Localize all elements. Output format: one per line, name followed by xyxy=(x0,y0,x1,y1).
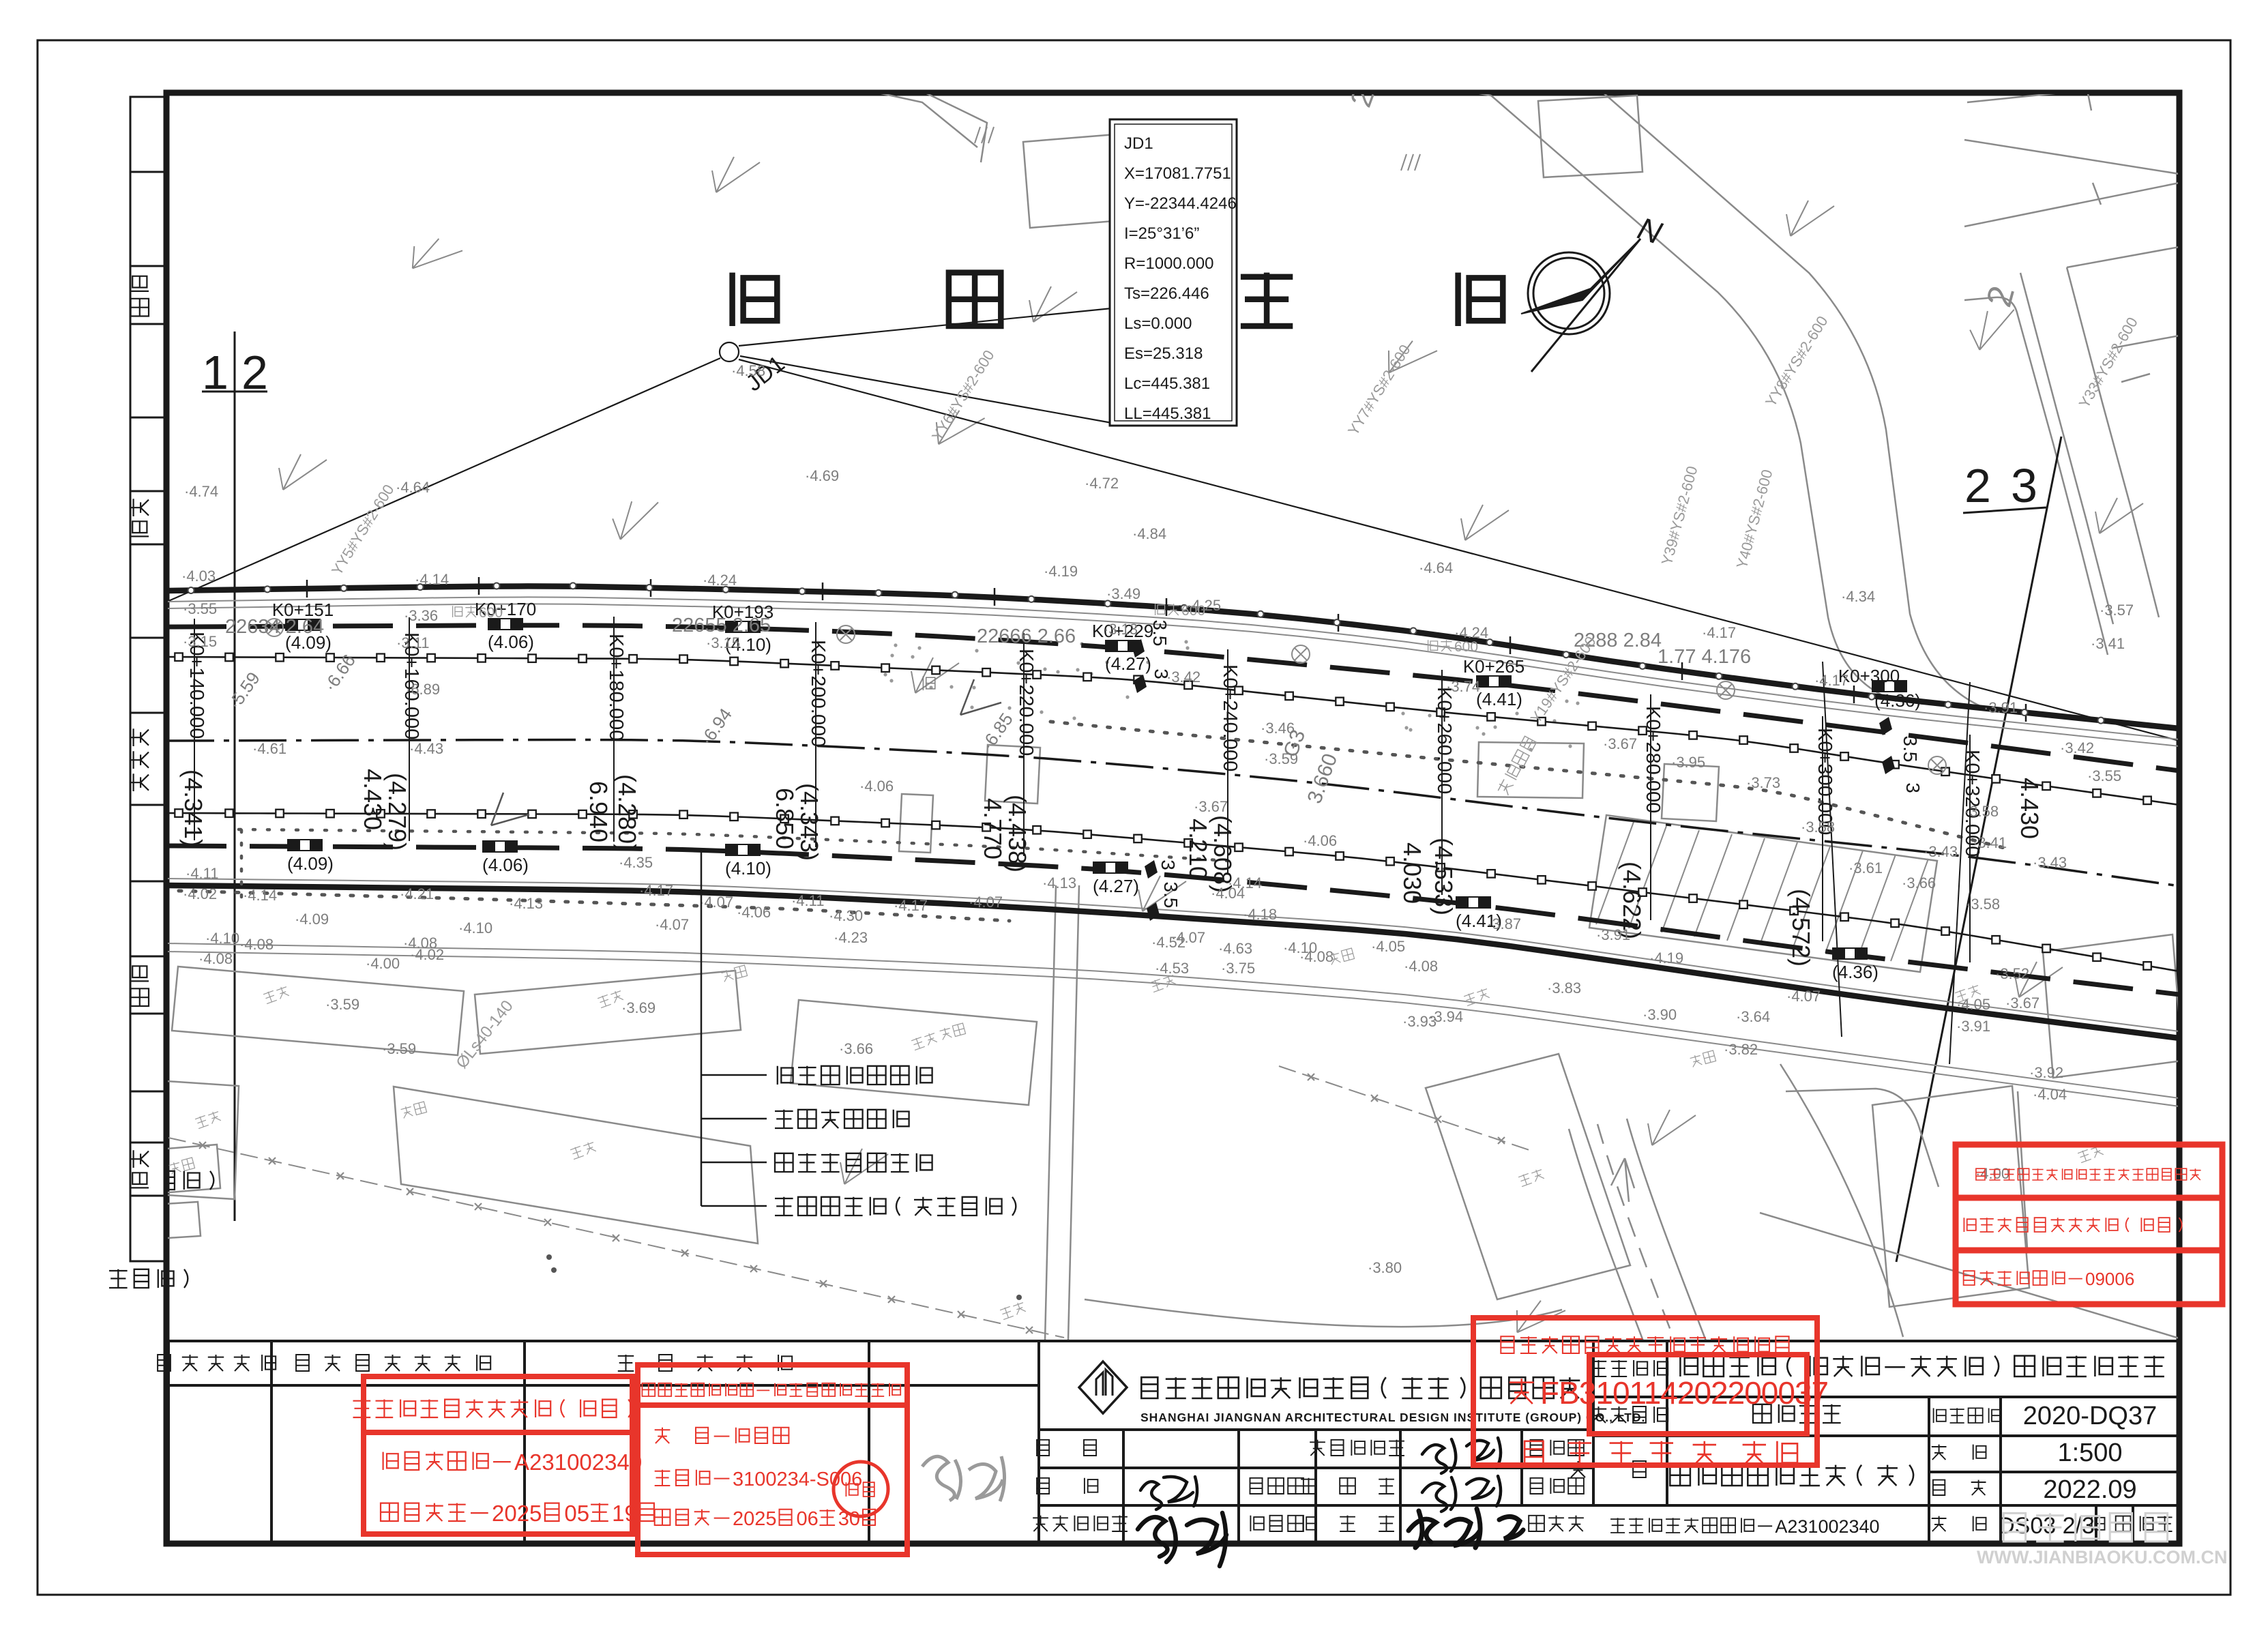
svg-text:·3.43: ·3.43 xyxy=(1924,843,1958,860)
svg-text:·4.24: ·4.24 xyxy=(703,572,737,589)
svg-text:·4.07: ·4.07 xyxy=(969,894,1003,911)
svg-text:·4.07: ·4.07 xyxy=(1786,988,1821,1005)
svg-text:·3.92: ·3.92 xyxy=(2029,1064,2063,1081)
svg-text:3: 3 xyxy=(1902,782,1924,793)
svg-text:(4.06): (4.06) xyxy=(488,632,534,652)
svg-text:·4.06: ·4.06 xyxy=(859,778,894,795)
svg-text:A231002340: A231002340 xyxy=(1775,1516,1879,1537)
svg-text:·3.42: ·3.42 xyxy=(1166,668,1201,686)
svg-text:·3.73: ·3.73 xyxy=(1746,774,1780,791)
svg-text:·4.72: ·4.72 xyxy=(1085,475,1119,492)
svg-text:K0+260.000: K0+260.000 xyxy=(1433,687,1455,794)
svg-text:·4.69: ·4.69 xyxy=(805,467,839,484)
svg-text:·4.43: ·4.43 xyxy=(409,740,443,757)
svg-text:05: 05 xyxy=(564,1501,589,1526)
svg-text:19: 19 xyxy=(612,1501,637,1526)
svg-text:·3.36: ·3.36 xyxy=(404,607,438,624)
svg-text:JD1: JD1 xyxy=(1124,134,1153,153)
svg-text:·3.91: ·3.91 xyxy=(1956,1018,1990,1035)
svg-text:·4.17: ·4.17 xyxy=(1702,624,1736,641)
svg-text:·4.06: ·4.06 xyxy=(1303,832,1337,849)
svg-text:·3.15: ·3.15 xyxy=(183,633,217,650)
svg-text:·4.61: ·4.61 xyxy=(252,740,286,757)
svg-text:09006: 09006 xyxy=(2085,1269,2134,1289)
svg-text:·3.75: ·3.75 xyxy=(1221,960,1255,977)
svg-text:·3.93: ·3.93 xyxy=(1402,1013,1437,1030)
svg-text:4.210: 4.210 xyxy=(1184,819,1212,880)
svg-text:I=25°31’6”: I=25°31’6” xyxy=(1124,224,1199,243)
svg-text:·3.64: ·3.64 xyxy=(1736,1008,1770,1025)
svg-text:Ts=226.446: Ts=226.446 xyxy=(1124,284,1209,303)
svg-text:·3.59: ·3.59 xyxy=(382,1040,416,1057)
svg-text:3: 3 xyxy=(2011,459,2037,512)
svg-text:·3.57: ·3.57 xyxy=(2100,602,2134,619)
svg-text:2022.09: 2022.09 xyxy=(2043,1475,2136,1504)
svg-text:3.5: 3.5 xyxy=(1149,620,1170,647)
svg-text:(4.533): (4.533) xyxy=(1430,838,1458,915)
svg-text:·3.41: ·3.41 xyxy=(2091,635,2125,652)
svg-text:·3.42: ·3.42 xyxy=(2060,739,2094,756)
svg-text:·3.95: ·3.95 xyxy=(1671,754,1705,771)
svg-text:·3.58: ·3.58 xyxy=(1964,803,1999,820)
svg-text:·4.08: ·4.08 xyxy=(1404,958,1438,975)
svg-text:·4.10: ·4.10 xyxy=(205,930,239,947)
svg-text:Ls=0.000: Ls=0.000 xyxy=(1124,314,1192,333)
svg-text:·3.80: ·3.80 xyxy=(1368,1259,1402,1276)
svg-text:K0+180.000: K0+180.000 xyxy=(605,634,627,741)
svg-text:·3.67: ·3.67 xyxy=(2005,995,2039,1012)
svg-text:A231002340: A231002340 xyxy=(514,1449,642,1475)
svg-text:·4.18: ·4.18 xyxy=(1243,906,1277,923)
svg-text:3.5: 3.5 xyxy=(1900,736,1921,763)
svg-text:4.430: 4.430 xyxy=(359,769,387,830)
svg-text:·4.02: ·4.02 xyxy=(183,885,217,902)
svg-text:K0+265: K0+265 xyxy=(1463,656,1525,677)
svg-text:06: 06 xyxy=(797,1508,819,1530)
svg-text:R=1000.000: R=1000.000 xyxy=(1124,254,1213,273)
svg-text:2025: 2025 xyxy=(733,1508,777,1530)
svg-text:K0+240.000: K0+240.000 xyxy=(1219,664,1241,771)
svg-text:·4.04: ·4.04 xyxy=(2033,1086,2067,1103)
svg-text:·3.82: ·3.82 xyxy=(1724,1041,1758,1058)
svg-text:600: 600 xyxy=(479,605,503,621)
svg-text:·4.34: ·4.34 xyxy=(1841,588,1875,605)
svg-text:·4.58: ·4.58 xyxy=(731,362,765,379)
svg-text:600: 600 xyxy=(1454,639,1478,655)
svg-text:(4.27): (4.27) xyxy=(1093,876,1139,896)
svg-text:·4.53: ·4.53 xyxy=(1155,960,1189,977)
svg-text:·3.58: ·3.58 xyxy=(1801,819,1835,836)
svg-text:·4.23: ·4.23 xyxy=(834,929,868,946)
svg-text:22666 2.66: 22666 2.66 xyxy=(977,625,1076,647)
svg-text:3100234-S006: 3100234-S006 xyxy=(733,1469,862,1490)
svg-text:(4.36): (4.36) xyxy=(1874,690,1921,711)
svg-text:·3.67: ·3.67 xyxy=(1603,735,1637,752)
svg-text:WWW.JIANBIAOKU.COM.CN: WWW.JIANBIAOKU.COM.CN xyxy=(1977,1547,2227,1567)
svg-text:2: 2 xyxy=(241,346,268,399)
svg-text:6.940: 6.940 xyxy=(585,781,613,842)
svg-text:(4.36): (4.36) xyxy=(1832,962,1879,982)
svg-text:·3.13: ·3.13 xyxy=(1104,621,1138,638)
svg-text:Es=25.318: Es=25.318 xyxy=(1124,344,1203,363)
svg-text:·4.08: ·4.08 xyxy=(239,936,274,953)
svg-text:(4.438): (4.438) xyxy=(1003,795,1031,872)
svg-text:(4.279): (4.279) xyxy=(383,773,411,851)
svg-text:2020-DQ37: 2020-DQ37 xyxy=(2023,1402,2157,1430)
svg-text:·3.59: ·3.59 xyxy=(325,996,359,1013)
svg-text:(4.09): (4.09) xyxy=(287,853,334,874)
svg-text:(4.10): (4.10) xyxy=(725,858,771,879)
svg-text:·3.66: ·3.66 xyxy=(1902,874,1936,892)
svg-text:·3.67: ·3.67 xyxy=(1194,798,1228,815)
svg-text:1: 1 xyxy=(202,346,229,399)
svg-text:FB310114202200037: FB310114202200037 xyxy=(1540,1375,1828,1411)
svg-text:·4.05: ·4.05 xyxy=(1371,938,1405,955)
svg-text:·4.14: ·4.14 xyxy=(1228,874,1262,892)
svg-text:·3.49: ·3.49 xyxy=(1106,585,1140,602)
svg-text:·4.10: ·4.10 xyxy=(458,919,492,937)
svg-text:4.430: 4.430 xyxy=(2016,778,2044,839)
svg-text:·4.07: ·4.07 xyxy=(655,916,689,933)
svg-text:·3.66: ·3.66 xyxy=(839,1040,873,1057)
svg-text:·4.17: ·4.17 xyxy=(1814,672,1849,689)
svg-text:Y=-22344.4246: Y=-22344.4246 xyxy=(1124,194,1237,213)
svg-text:·4.19: ·4.19 xyxy=(1649,949,1683,967)
svg-text:·3.74: ·3.74 xyxy=(1446,678,1480,695)
svg-text:·4.64: ·4.64 xyxy=(1419,559,1453,576)
svg-text:4.030: 4.030 xyxy=(1398,842,1426,904)
svg-text:(4.41): (4.41) xyxy=(1476,689,1522,709)
svg-text:·4.63: ·4.63 xyxy=(1218,940,1252,957)
svg-text:·4.08: ·4.08 xyxy=(1299,948,1334,965)
svg-text:·4.00: ·4.00 xyxy=(366,955,400,972)
svg-text:·3.52: ·3.52 xyxy=(1995,965,2029,982)
svg-text:K0+200.000: K0+200.000 xyxy=(807,640,829,747)
svg-text:·4.02: ·4.02 xyxy=(410,946,444,963)
svg-text:K0+220.000: K0+220.000 xyxy=(1015,649,1037,756)
svg-text:Lc=445.381: Lc=445.381 xyxy=(1124,374,1210,393)
svg-text:·4.35: ·4.35 xyxy=(619,854,653,871)
svg-text:·3.87: ·3.87 xyxy=(1487,915,1521,932)
svg-text:·3.91: ·3.91 xyxy=(1984,699,2018,716)
svg-text:X=17081.7751: X=17081.7751 xyxy=(1124,164,1231,183)
svg-text:·3.15: ·3.15 xyxy=(706,634,740,651)
svg-text:·4.11: ·4.11 xyxy=(791,892,825,909)
svg-text:SHANGHAI JIANGNAN ARCHITECTURA: SHANGHAI JIANGNAN ARCHITECTURAL DESIGN I… xyxy=(1140,1411,1645,1424)
svg-text:600: 600 xyxy=(1181,603,1205,619)
svg-text:3.5: 3.5 xyxy=(1160,882,1181,909)
svg-text:·4.13: ·4.13 xyxy=(509,895,543,912)
svg-text:·3.90: ·3.90 xyxy=(1643,1006,1677,1023)
svg-text:·3.43: ·3.43 xyxy=(2033,854,2067,871)
svg-text:·3.69: ·3.69 xyxy=(621,999,656,1016)
svg-text:·3.61: ·3.61 xyxy=(1849,859,1883,877)
svg-text:1.77 4.176: 1.77 4.176 xyxy=(1658,646,1751,668)
svg-text:·4.08: ·4.08 xyxy=(198,950,233,967)
svg-text:·4.06: ·4.06 xyxy=(737,904,771,921)
svg-text:·4.05: ·4.05 xyxy=(1956,996,1990,1013)
svg-text:1:500: 1:500 xyxy=(2057,1439,2122,1467)
svg-text:·3.83: ·3.83 xyxy=(1547,979,1581,997)
svg-text:22634 2.64: 22634 2.64 xyxy=(225,616,324,638)
svg-text:·3.91: ·3.91 xyxy=(1596,926,1630,943)
svg-text:·4.07: ·4.07 xyxy=(699,894,733,911)
svg-text:(4.572): (4.572) xyxy=(1787,889,1815,967)
svg-text:(4.280): (4.280) xyxy=(613,774,641,852)
svg-text:·4.19: ·4.19 xyxy=(1044,563,1078,580)
svg-text:LL=445.381: LL=445.381 xyxy=(1124,404,1211,423)
svg-text:·3.55: ·3.55 xyxy=(2087,767,2121,784)
svg-text:6.850: 6.850 xyxy=(771,788,799,849)
svg-text:DS03 2/3: DS03 2/3 xyxy=(1998,1513,2095,1539)
svg-text:·4.30: ·4.30 xyxy=(829,907,863,924)
svg-text:·4.74: ·4.74 xyxy=(184,483,218,500)
svg-text:·3.55: ·3.55 xyxy=(183,600,217,617)
svg-text:30: 30 xyxy=(838,1508,860,1530)
svg-text:·3.58: ·3.58 xyxy=(1966,896,2000,913)
svg-text:·3.11: ·3.11 xyxy=(396,634,430,651)
svg-text:·4.21: ·4.21 xyxy=(400,885,434,902)
svg-text:4.770: 4.770 xyxy=(979,798,1007,859)
svg-text:(4.27): (4.27) xyxy=(1105,653,1151,674)
svg-text:3: 3 xyxy=(1158,859,1179,870)
svg-text:22655 2.65: 22655 2.65 xyxy=(672,615,771,636)
svg-text:(4.06): (4.06) xyxy=(482,855,529,875)
svg-text:·4.84: ·4.84 xyxy=(1132,525,1166,542)
svg-text:·4.14: ·4.14 xyxy=(415,571,449,588)
svg-text:·4.07: ·4.07 xyxy=(1171,929,1205,946)
svg-text:·3.41: ·3.41 xyxy=(1973,834,2007,851)
svg-text:·4.09: ·4.09 xyxy=(295,911,329,928)
svg-text:·6.89: ·6.89 xyxy=(406,681,440,698)
svg-text:K0+280.000: K0+280.000 xyxy=(1642,706,1664,813)
svg-text:·4.17: ·4.17 xyxy=(894,897,928,914)
svg-text:·4.17: ·4.17 xyxy=(639,882,673,899)
svg-text:·4.64: ·4.64 xyxy=(396,479,430,496)
svg-text:·4.13: ·4.13 xyxy=(1042,874,1076,892)
svg-text:2025: 2025 xyxy=(492,1501,542,1526)
svg-text:(4.343): (4.343) xyxy=(795,783,823,861)
svg-text:·4.11: ·4.11 xyxy=(186,865,219,882)
svg-text:·4.14: ·4.14 xyxy=(243,887,277,904)
svg-text:(4.341): (4.341) xyxy=(179,769,207,847)
svg-text:·4.03: ·4.03 xyxy=(181,568,216,585)
svg-text:2: 2 xyxy=(1964,459,1991,512)
